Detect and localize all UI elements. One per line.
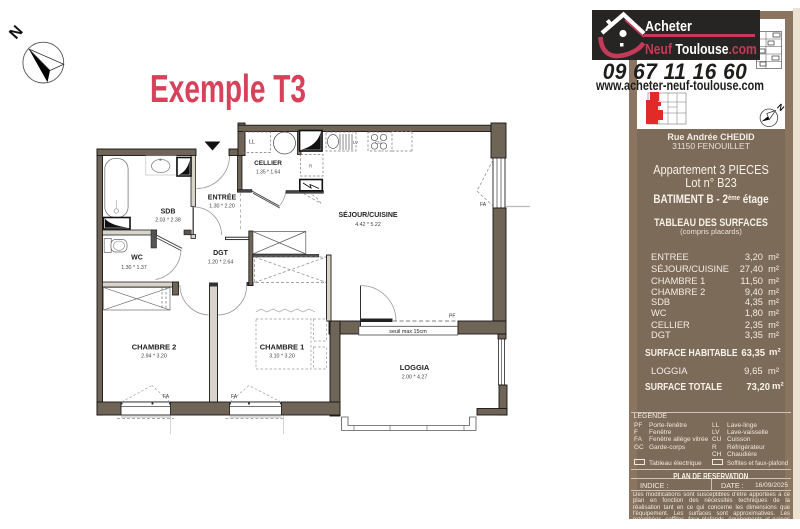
svg-text:R: R xyxy=(309,164,313,169)
svg-text:LOGGIA: LOGGIA xyxy=(400,363,430,372)
svg-text:N: N xyxy=(6,23,26,43)
svg-text:Exemple T3: Exemple T3 xyxy=(150,68,306,112)
svg-text:seuil max 15cm: seuil max 15cm xyxy=(389,329,427,335)
svg-text:SDB: SDB xyxy=(161,209,176,216)
svg-text:1.30 * 2.20: 1.30 * 2.20 xyxy=(209,204,235,210)
svg-text:1.30 * 1.37: 1.30 * 1.37 xyxy=(121,265,147,271)
svg-text:LV: LV xyxy=(353,140,358,145)
svg-text:3.10 * 3.20: 3.10 * 3.20 xyxy=(269,354,295,360)
svg-text:2.03 * 2.38: 2.03 * 2.38 xyxy=(155,218,181,224)
svg-text:LL: LL xyxy=(249,140,255,146)
svg-text:DGT: DGT xyxy=(213,250,229,257)
svg-text:CU: CU xyxy=(375,140,382,145)
svg-text:2.00 * 4.27: 2.00 * 4.27 xyxy=(402,375,428,381)
svg-text:CHAMBRE 1: CHAMBRE 1 xyxy=(260,343,305,352)
svg-text:1.35 * 1.64: 1.35 * 1.64 xyxy=(256,170,280,176)
svg-text:4.42 * 5.22: 4.42 * 5.22 xyxy=(355,222,381,228)
svg-text:FA: FA xyxy=(231,394,238,400)
svg-text:WC: WC xyxy=(131,255,143,262)
svg-text:SÉJOUR/CUISINE: SÉJOUR/CUISINE xyxy=(338,210,397,219)
svg-text:2.94 * 3.20: 2.94 * 3.20 xyxy=(141,354,167,360)
svg-text:FA: FA xyxy=(163,394,170,400)
svg-text:FA: FA xyxy=(480,202,487,208)
svg-text:ENTRÉE: ENTRÉE xyxy=(208,193,237,202)
svg-text:1.20 * 2.64: 1.20 * 2.64 xyxy=(208,260,234,266)
svg-text:CHAMBRE 2: CHAMBRE 2 xyxy=(132,343,177,352)
svg-text:CELLIER: CELLIER xyxy=(254,160,282,167)
svg-text:N: N xyxy=(775,102,786,114)
svg-text:PF: PF xyxy=(449,314,455,320)
